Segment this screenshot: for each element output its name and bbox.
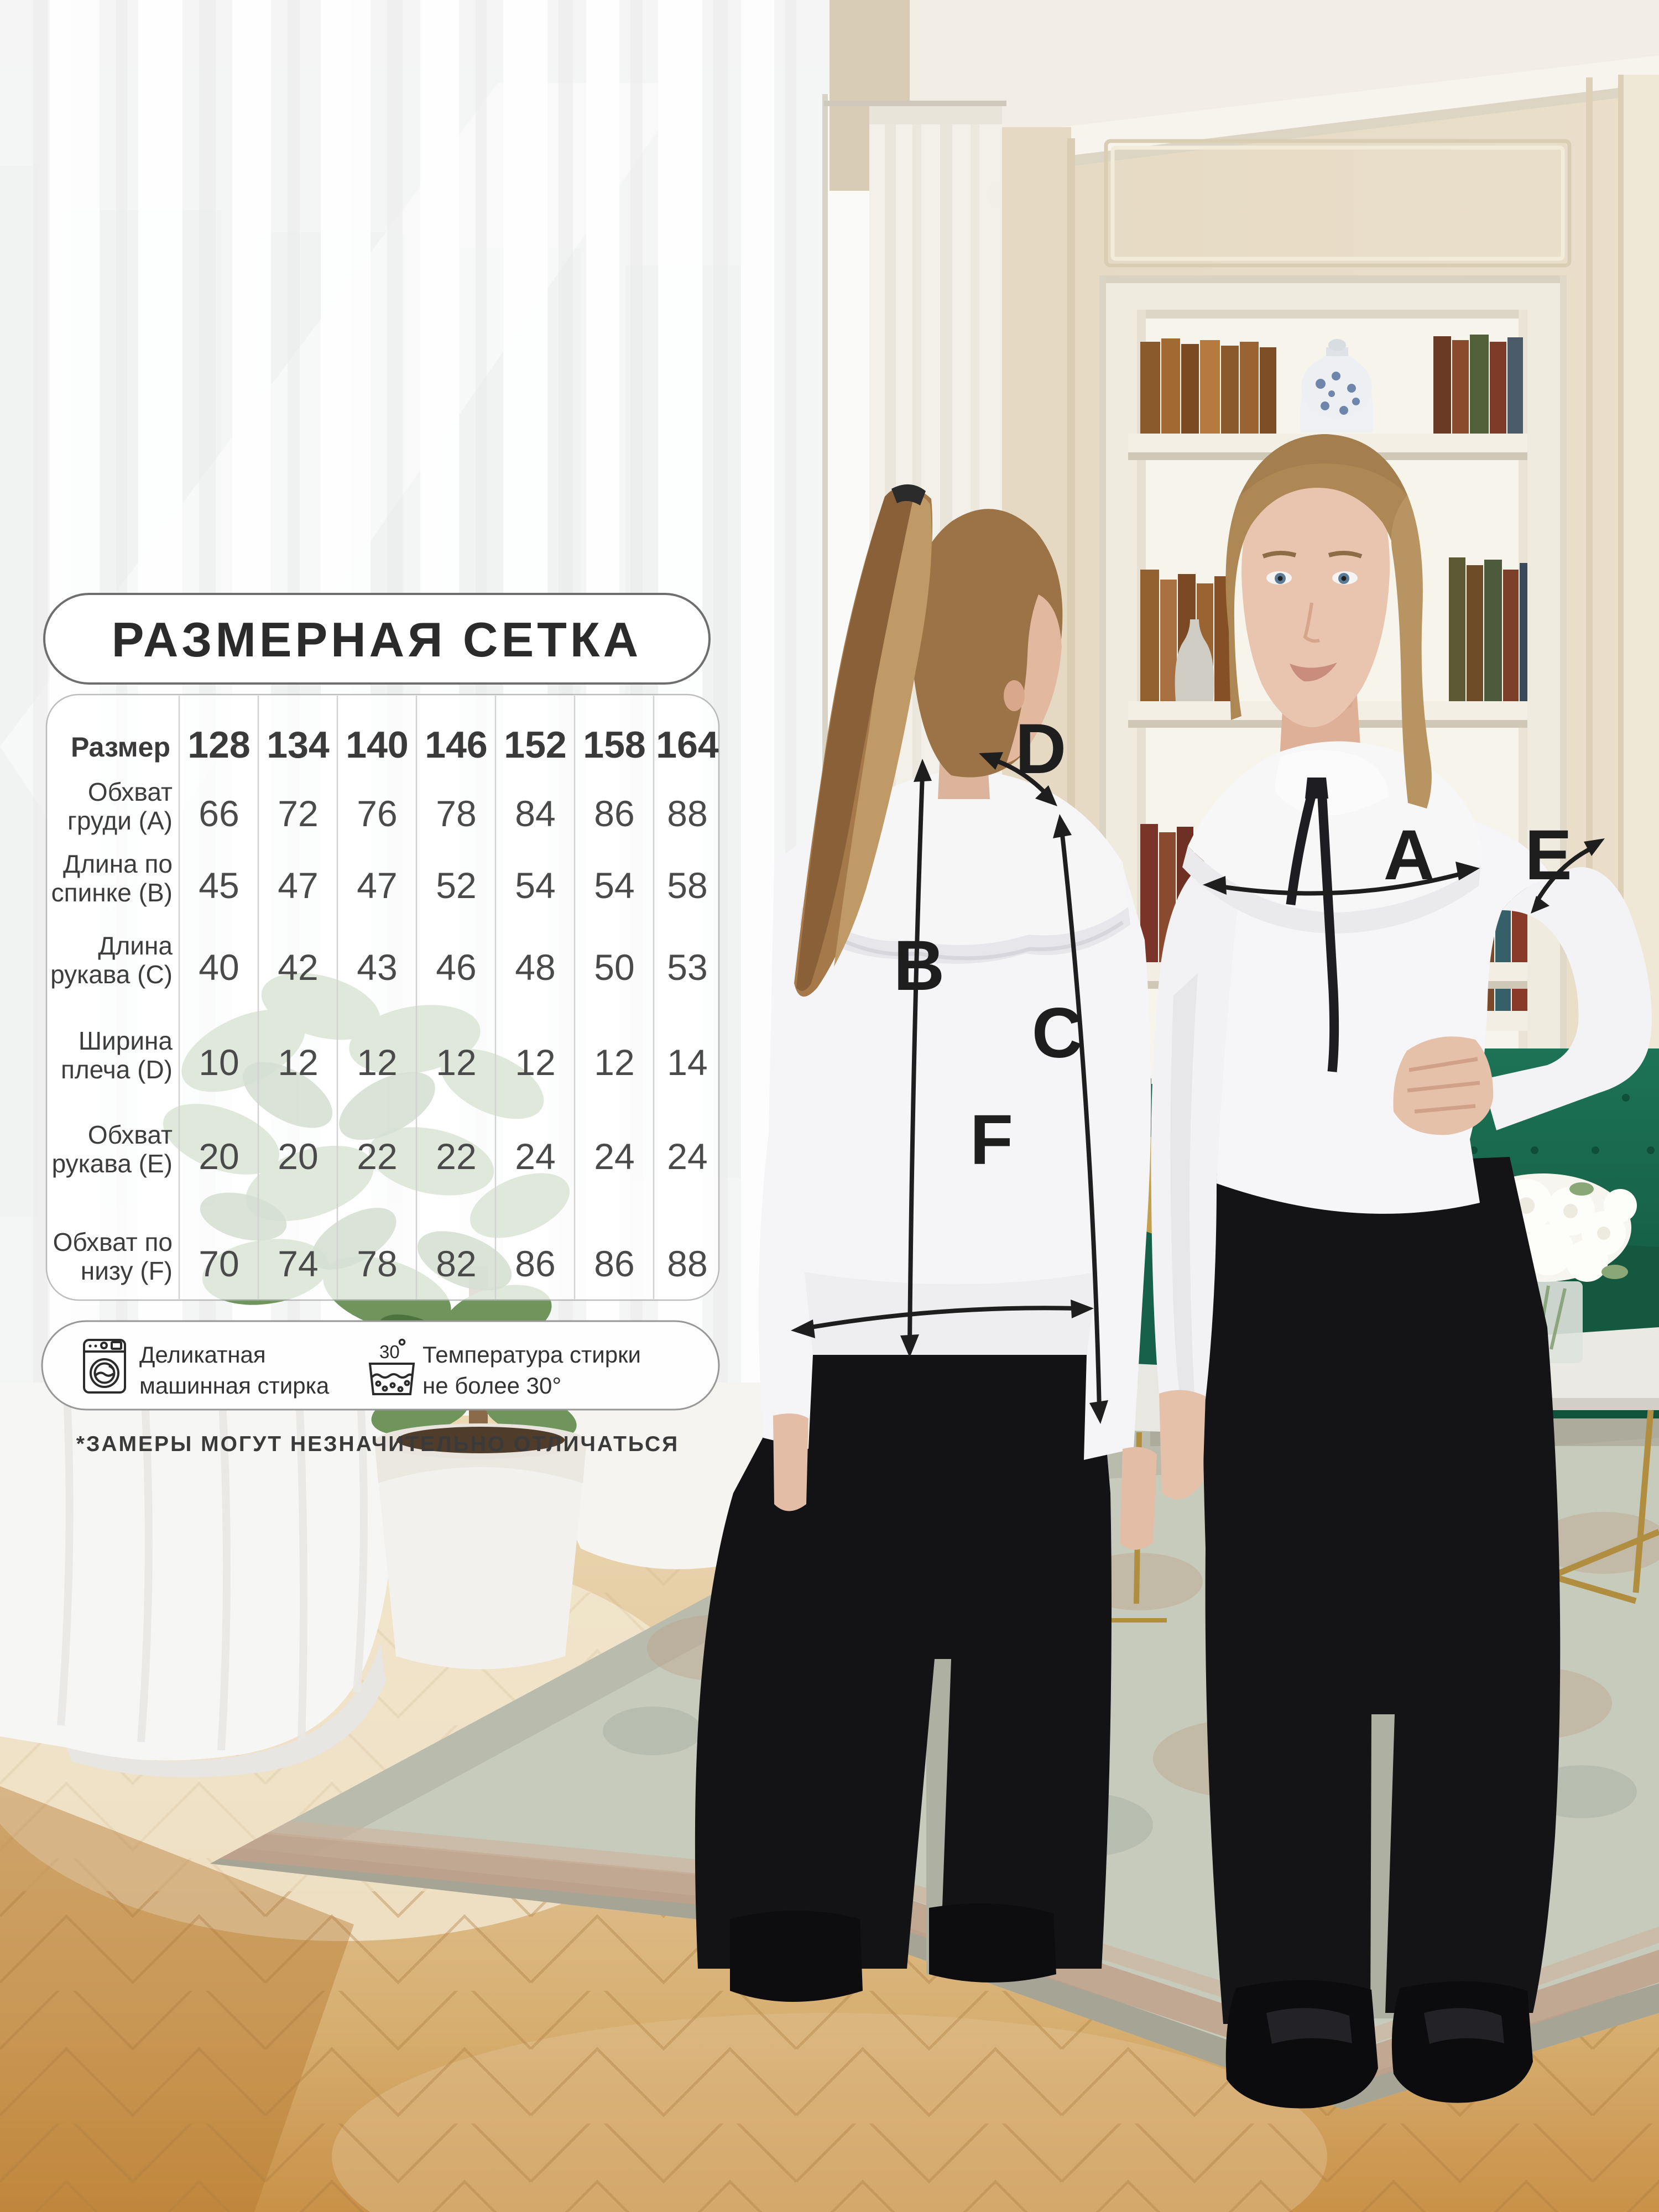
svg-text:D: D [1015, 709, 1066, 789]
svg-text:20: 20 [199, 1136, 239, 1177]
svg-text:30: 30 [379, 1342, 400, 1362]
svg-text:12: 12 [357, 1042, 397, 1083]
svg-text:12: 12 [515, 1042, 555, 1083]
svg-text:58: 58 [667, 865, 707, 906]
svg-text:88: 88 [667, 793, 707, 834]
svg-text:24: 24 [594, 1136, 634, 1177]
svg-text:C: C [1032, 994, 1083, 1073]
svg-text:74: 74 [278, 1243, 318, 1284]
svg-text:128: 128 [187, 724, 250, 766]
svg-text:10: 10 [199, 1042, 239, 1083]
svg-text:76: 76 [357, 793, 397, 834]
svg-text:70: 70 [199, 1243, 239, 1284]
svg-text:54: 54 [594, 865, 634, 906]
svg-text:45: 45 [199, 865, 239, 906]
svg-text:146: 146 [425, 724, 487, 766]
svg-text:спинке (В): спинке (В) [51, 878, 173, 907]
svg-text:Деликатная: Деликатная [139, 1342, 266, 1368]
svg-text:86: 86 [515, 1243, 555, 1284]
svg-text:12: 12 [278, 1042, 318, 1083]
svg-text:86: 86 [594, 793, 634, 834]
svg-text:E: E [1525, 816, 1572, 895]
svg-text:Обхват: Обхват [88, 778, 173, 806]
svg-text:низу (F): низу (F) [81, 1256, 173, 1285]
svg-text:53: 53 [667, 947, 707, 988]
svg-text:24: 24 [667, 1136, 707, 1177]
svg-text:12: 12 [436, 1042, 476, 1083]
svg-text:B: B [894, 926, 945, 1005]
svg-text:рукава (С): рукава (С) [50, 960, 173, 989]
svg-text:47: 47 [357, 865, 397, 906]
svg-text:F: F [970, 1100, 1013, 1180]
svg-text:134: 134 [267, 724, 330, 766]
svg-text:14: 14 [667, 1042, 707, 1083]
svg-text:158: 158 [583, 724, 645, 766]
svg-text:22: 22 [357, 1136, 397, 1177]
svg-text:20: 20 [278, 1136, 318, 1177]
svg-text:66: 66 [199, 793, 239, 834]
svg-text:24: 24 [515, 1136, 555, 1177]
svg-text:Обхват: Обхват [88, 1120, 173, 1149]
svg-text:Ширина: Ширина [79, 1026, 173, 1055]
svg-text:46: 46 [436, 947, 476, 988]
svg-text:Длина: Длина [98, 931, 173, 960]
svg-text:РАЗМЕРНАЯ СЕТКА: РАЗМЕРНАЯ СЕТКА [112, 612, 641, 667]
svg-text:164: 164 [656, 724, 719, 766]
svg-text:48: 48 [515, 947, 555, 988]
svg-text:88: 88 [667, 1243, 707, 1284]
svg-text:40: 40 [199, 947, 239, 988]
svg-text:груди (А): груди (А) [67, 806, 173, 835]
svg-text:*ЗАМЕРЫ МОГУТ НЕЗНАЧИТЕЛЬНО ОТ: *ЗАМЕРЫ МОГУТ НЕЗНАЧИТЕЛЬНО ОТЛИЧАТЬСЯ [76, 1432, 679, 1456]
svg-text:не более 30°: не более 30° [422, 1373, 561, 1399]
svg-text:84: 84 [515, 793, 555, 834]
svg-text:78: 78 [357, 1243, 397, 1284]
svg-text:22: 22 [436, 1136, 476, 1177]
svg-text:Обхват по: Обхват по [53, 1228, 173, 1256]
svg-text:54: 54 [515, 865, 555, 906]
svg-text:Размер: Размер [71, 732, 170, 763]
svg-text:47: 47 [278, 865, 318, 906]
svg-text:Температура стирки: Температура стирки [422, 1342, 641, 1368]
svg-text:140: 140 [346, 724, 408, 766]
svg-text:42: 42 [278, 947, 318, 988]
svg-text:A: A [1384, 816, 1434, 895]
svg-text:50: 50 [594, 947, 634, 988]
svg-text:72: 72 [278, 793, 318, 834]
svg-text:82: 82 [436, 1243, 476, 1284]
svg-text:машинная стирка: машинная стирка [139, 1373, 330, 1399]
svg-text:78: 78 [436, 793, 476, 834]
svg-text:рукава (Е): рукава (Е) [52, 1149, 173, 1178]
svg-text:12: 12 [594, 1042, 634, 1083]
svg-text:52: 52 [436, 865, 476, 906]
svg-text:152: 152 [504, 724, 566, 766]
svg-text:86: 86 [594, 1243, 634, 1284]
svg-text:плеча (D): плеча (D) [61, 1055, 173, 1084]
svg-text:Длина по: Длина по [63, 849, 173, 878]
svg-text:43: 43 [357, 947, 397, 988]
